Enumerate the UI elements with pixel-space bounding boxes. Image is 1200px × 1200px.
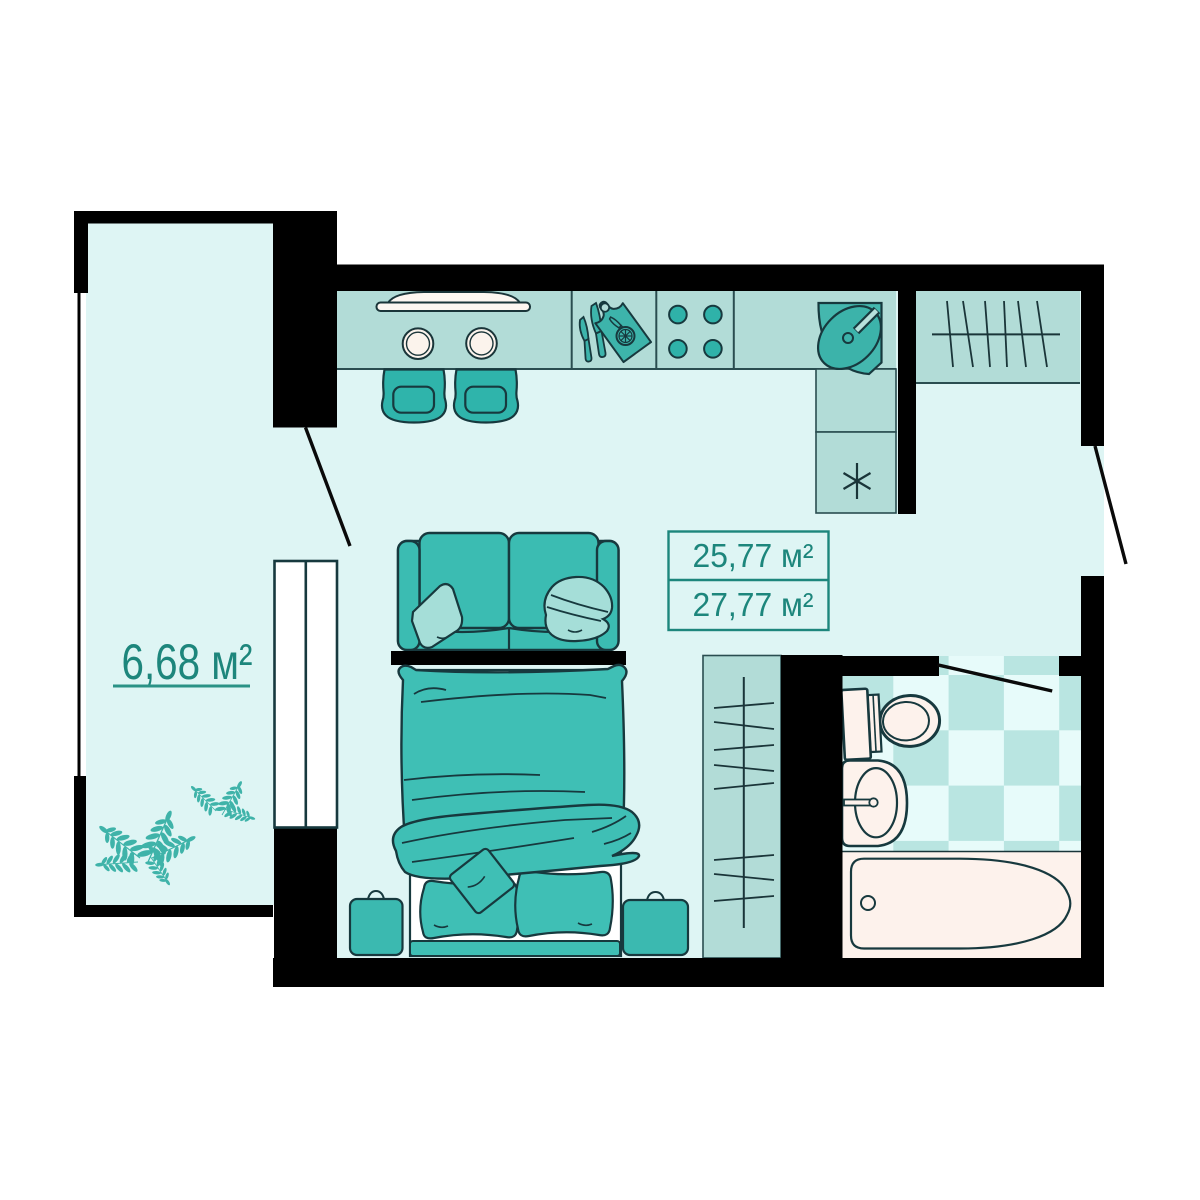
svg-text:27,77 м²: 27,77 м² [693, 586, 814, 623]
svg-text:6,68 м²: 6,68 м² [122, 634, 253, 690]
svg-text:25,77 м²: 25,77 м² [693, 537, 814, 574]
